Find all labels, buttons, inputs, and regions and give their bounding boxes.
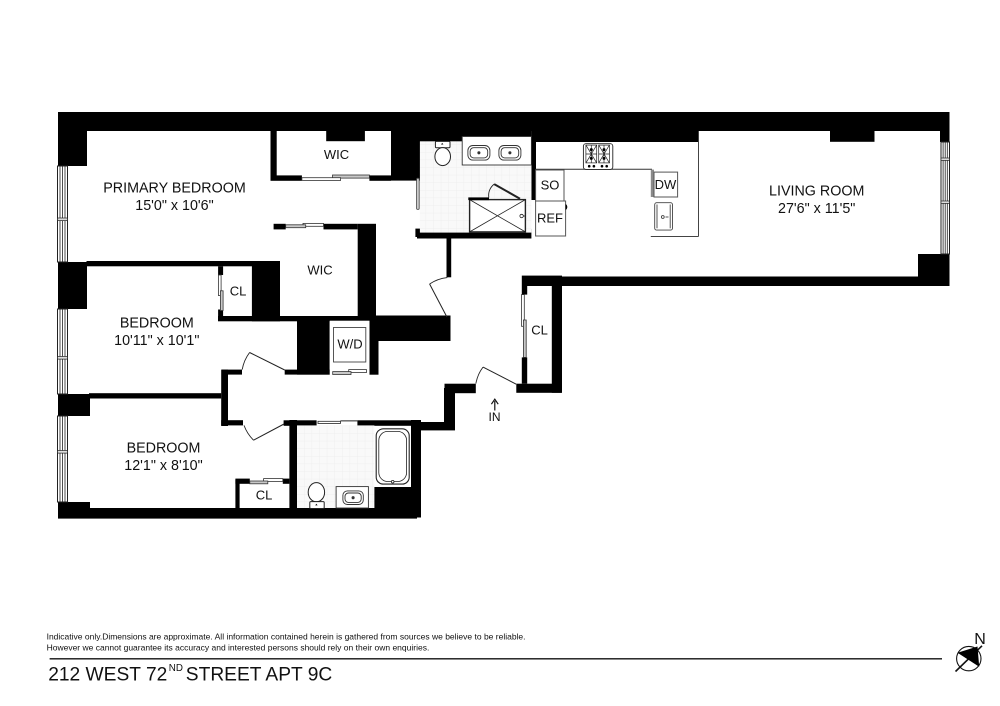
svg-text:LIVING ROOM: LIVING ROOM [769, 184, 864, 200]
svg-text:12'1" x 8'10": 12'1" x 8'10" [124, 458, 202, 474]
svg-text:10'11" x 10'1": 10'11" x 10'1" [114, 333, 199, 349]
svg-text:DW: DW [655, 177, 677, 192]
svg-text:W/D: W/D [337, 337, 362, 352]
svg-text:ND: ND [169, 663, 183, 674]
svg-text:WIC: WIC [324, 147, 349, 162]
svg-text:PRIMARY BEDROOM: PRIMARY BEDROOM [103, 181, 245, 197]
svg-text:WIC: WIC [307, 263, 332, 278]
svg-text:IN: IN [489, 410, 501, 424]
svg-text:REF: REF [537, 211, 563, 226]
svg-text:N: N [974, 631, 986, 648]
svg-text:27'6" x 11'5": 27'6" x 11'5" [778, 201, 855, 217]
svg-text:SO: SO [541, 178, 560, 193]
svg-text:CL: CL [256, 488, 273, 503]
svg-text:CL: CL [230, 284, 247, 299]
svg-text:BEDROOM: BEDROOM [127, 441, 201, 457]
svg-text:CL: CL [531, 323, 548, 338]
svg-text:212 WEST 72: 212 WEST 72 [48, 664, 167, 685]
svg-text:STREET APT 9C: STREET APT 9C [186, 664, 333, 685]
svg-text:BEDROOM: BEDROOM [120, 316, 194, 332]
svg-text:15'0" x 10'6": 15'0" x 10'6" [135, 198, 213, 214]
svg-text:Indicative only.Dimensions are: Indicative only.Dimensions are approxima… [47, 631, 526, 641]
svg-text:However we cannot guarantee it: However we cannot guarantee its accuracy… [47, 642, 430, 652]
